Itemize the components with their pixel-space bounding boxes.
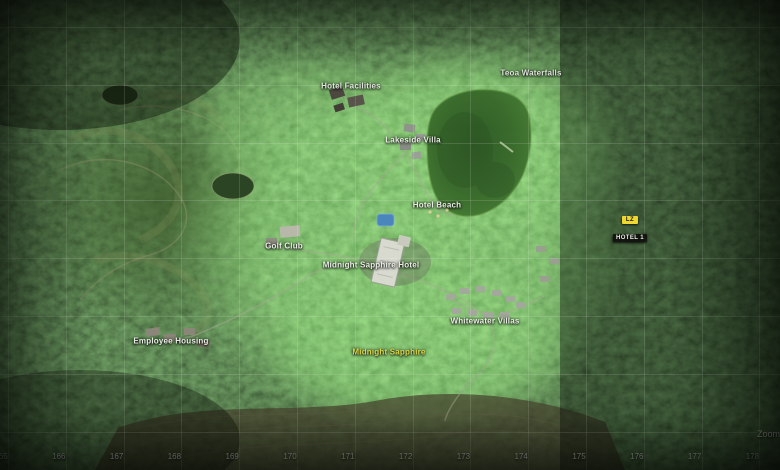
map-satellite-art xyxy=(0,0,780,470)
zoom-hud-label: Zoom xyxy=(757,429,780,439)
lz-badge[interactable]: LZ xyxy=(622,216,638,224)
east-forest-shade xyxy=(560,0,780,470)
lz-marker-hotel-1[interactable]: LZ HOTEL 1 xyxy=(613,208,647,244)
tactical-map[interactable]: 1651661671681691701711721731741751761771… xyxy=(0,0,780,470)
lz-name-label: HOTEL 1 xyxy=(613,234,647,242)
pond-west xyxy=(212,173,254,199)
